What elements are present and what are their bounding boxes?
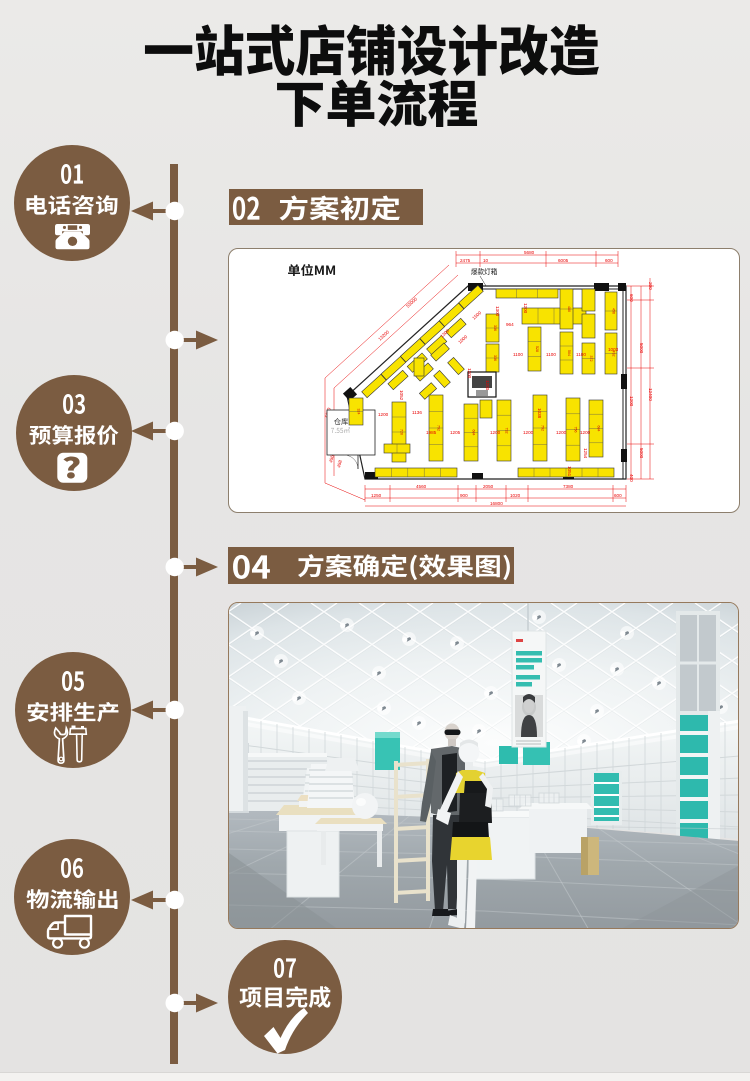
svg-text:5680: 5680	[524, 250, 535, 255]
svg-text:1100: 1100	[513, 352, 523, 357]
svg-text:1136: 1136	[412, 410, 422, 415]
svg-text:372: 372	[589, 356, 593, 362]
svg-text:1200: 1200	[523, 430, 534, 435]
svg-text:5000: 5000	[639, 343, 644, 354]
svg-text:1200: 1200	[580, 430, 591, 435]
svg-text:684: 684	[472, 430, 476, 436]
svg-text:528: 528	[535, 346, 539, 352]
svg-text:684: 684	[597, 426, 601, 432]
svg-text:732: 732	[505, 428, 509, 434]
svg-text:1100: 1100	[546, 352, 556, 357]
svg-text:336: 336	[493, 325, 497, 331]
svg-text:1250: 1250	[371, 493, 382, 498]
svg-text:2050: 2050	[483, 484, 494, 489]
svg-text:1500: 1500	[471, 310, 482, 321]
svg-text:1100: 1100	[576, 352, 586, 357]
svg-text:53000: 53000	[405, 296, 418, 309]
svg-text:1200: 1200	[490, 430, 501, 435]
svg-text:600: 600	[629, 294, 634, 302]
svg-text:1200: 1200	[523, 303, 528, 314]
svg-text:10: 10	[483, 258, 489, 263]
svg-text:600: 600	[614, 493, 622, 498]
svg-text:16800: 16800	[490, 501, 503, 506]
svg-text:5000: 5000	[639, 448, 644, 459]
svg-text:1200: 1200	[467, 368, 472, 379]
svg-text:1200: 1200	[556, 430, 567, 435]
svg-text:1254: 1254	[583, 448, 588, 459]
svg-text:480: 480	[567, 306, 571, 312]
svg-text:1020: 1020	[510, 493, 521, 498]
svg-text:900: 900	[460, 493, 468, 498]
svg-text:504: 504	[567, 350, 571, 356]
svg-text:1200: 1200	[629, 396, 634, 407]
svg-text:4560: 4560	[416, 484, 427, 489]
svg-text:1205: 1205	[450, 430, 461, 435]
svg-text:1003: 1003	[608, 347, 619, 352]
svg-text:792: 792	[541, 425, 545, 431]
svg-text:2475: 2475	[460, 258, 471, 263]
svg-text:1200: 1200	[485, 380, 490, 391]
svg-text:7380: 7380	[563, 484, 574, 489]
svg-text:600: 600	[605, 258, 613, 263]
svg-text:13200: 13200	[377, 329, 390, 342]
svg-text:1051: 1051	[567, 466, 572, 477]
svg-text:1000: 1000	[457, 334, 468, 345]
svg-text:720: 720	[400, 429, 404, 435]
svg-text:1300: 1300	[495, 306, 500, 317]
svg-text:792: 792	[437, 425, 441, 431]
svg-text:1985: 1985	[426, 430, 437, 435]
svg-text:200: 200	[648, 282, 653, 290]
svg-text:400: 400	[629, 474, 634, 482]
svg-text:458: 458	[336, 459, 343, 468]
svg-text:964: 964	[506, 322, 514, 327]
svg-text:1200: 1200	[378, 412, 389, 417]
svg-text:6005: 6005	[558, 258, 569, 263]
svg-text:324: 324	[357, 409, 361, 415]
svg-text:12400: 12400	[648, 388, 653, 401]
svg-text:1052: 1052	[399, 390, 404, 401]
svg-text:456: 456	[612, 308, 616, 314]
svg-text:336: 336	[493, 355, 497, 361]
svg-text:756: 756	[574, 427, 578, 433]
svg-text:1038: 1038	[537, 408, 542, 419]
